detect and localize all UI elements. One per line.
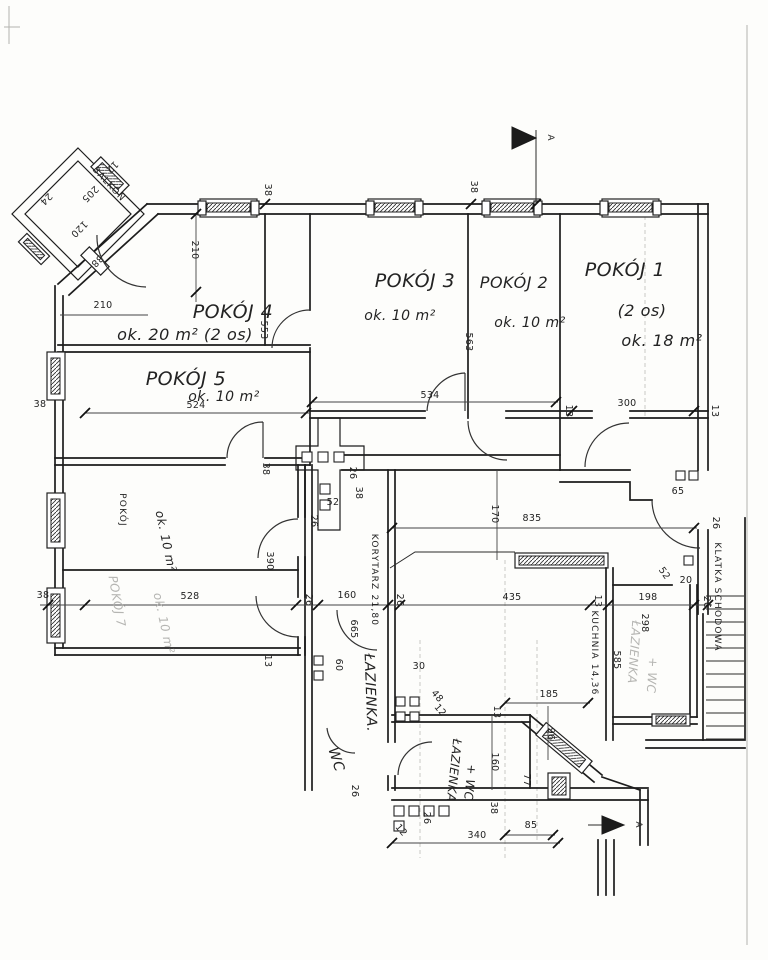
- door-p4-strip: [272, 310, 310, 348]
- dimension-label: 38: [37, 590, 50, 601]
- kitchen-lintel-hatch: [519, 556, 604, 565]
- dimension-label: 210: [93, 300, 112, 311]
- door-p1-hall: [585, 423, 629, 467]
- dimension-label: 65: [672, 486, 685, 497]
- dimension-label: 38: [353, 487, 364, 500]
- window-pokoj5: [47, 352, 65, 400]
- label-pokoj7: POKÓJ 7: [106, 574, 130, 628]
- window-diagonal: [536, 723, 592, 774]
- dimension-label: 585: [611, 650, 622, 669]
- window-bath-right: [652, 714, 690, 726]
- window-pokoj1: [600, 199, 661, 217]
- dimension-label: 534: [420, 390, 439, 401]
- window-pokoj3: [366, 199, 423, 217]
- dimension-label: 198: [638, 592, 657, 603]
- wall-kitchen-top: [390, 552, 515, 568]
- dimension-label: 24: [37, 190, 54, 207]
- door-entry: [652, 500, 700, 548]
- section-letter-bottom: A: [633, 821, 643, 828]
- dimension-label: 96: [545, 728, 556, 741]
- dimension-label: 435: [502, 592, 521, 603]
- label-pokoj3: POKÓJ 3: [375, 268, 456, 292]
- dimension-label: 205: [79, 183, 100, 204]
- dimension-label: 26: [701, 596, 712, 609]
- dimension-label: 52: [656, 565, 672, 582]
- dimension-label: 340: [467, 830, 486, 841]
- window-bottom-small: [548, 773, 570, 799]
- label-kuchnia: KUCHNIA 14,36: [589, 610, 599, 695]
- dimension-label: 26: [347, 467, 358, 480]
- area-pokoj1: ok. 18 m²: [621, 331, 702, 350]
- dimension-label: 38: [468, 181, 479, 194]
- wall-bottom: [392, 788, 648, 800]
- window-pokoj6: [47, 493, 65, 548]
- label-pokoj2: POKÓJ 2: [480, 273, 548, 292]
- label-pokoj1: POKÓJ 1: [585, 257, 666, 281]
- section-flag-icon: [512, 127, 536, 149]
- suffix-lazienka-wc-bottom: + WC: [461, 764, 479, 801]
- wall-right: [698, 204, 708, 740]
- dimension-label: 528: [180, 591, 199, 602]
- wall-porch: [598, 790, 648, 895]
- dimension-label: 30: [413, 661, 426, 672]
- dimension-label: 26: [349, 785, 360, 798]
- labels-layer: BALKON POKÓJ 4 ok. 20 m² (2 os) POKÓJ 3 …: [90, 165, 722, 802]
- dimension-label: 52: [327, 497, 340, 508]
- door-pokoj7: [256, 596, 298, 637]
- label-pokoj4: POKÓJ 4: [193, 299, 274, 323]
- balcony-outer-rail: [12, 148, 144, 280]
- label-klatka-schodowa: KLATKA SCHODOWA: [712, 542, 722, 651]
- dimension-label: 524: [186, 400, 205, 411]
- area-pokoj3: ok. 10 m²: [364, 308, 436, 324]
- floor-plan-page: A A BALKON POKÓJ 4 ok. 20 m² (2 os) POKÓ…: [0, 0, 768, 960]
- area-pokoj6: ok. 10 m²: [153, 509, 180, 573]
- label-korytarz: KORYTARZ 21,80: [369, 534, 379, 626]
- area-pokoj2: ok. 10 m²: [494, 315, 566, 331]
- dimension-label: 390: [264, 551, 275, 570]
- section-marker-bottom: A: [588, 816, 643, 834]
- window-pokoj4: [198, 199, 259, 217]
- dimension-label: 563: [463, 332, 474, 351]
- door-p5: [227, 422, 263, 458]
- dimension-label: 26: [308, 515, 319, 528]
- dimension-label: 170: [489, 504, 500, 523]
- dimension-label: 38: [260, 463, 271, 476]
- dimension-label: 12: [432, 702, 449, 719]
- dimension-label: 77: [521, 774, 532, 787]
- label-pokoj5: POKÓJ 5: [146, 366, 227, 390]
- dimension-label: 38: [488, 802, 499, 815]
- dimension-label: 13: [491, 706, 502, 719]
- dimension-label: 26: [710, 517, 721, 530]
- label-pokoj6: POKÓJ: [117, 493, 129, 527]
- dimension-label: 38: [34, 399, 47, 410]
- dimension-label: 120: [68, 218, 89, 239]
- dimension-label: 26: [394, 594, 405, 607]
- dimension-label: 160: [489, 752, 500, 771]
- wall-corridor-right: [388, 470, 395, 790]
- dimension-label: 85: [525, 820, 538, 831]
- dimension-label: 300: [617, 398, 636, 409]
- floor-plan-drawing: A A BALKON POKÓJ 4 ok. 20 m² (2 os) POKÓ…: [0, 0, 768, 960]
- area-pokoj7: ok. 10 m²: [151, 591, 178, 655]
- scan-artifacts: [4, 6, 747, 945]
- wall-entry: [560, 470, 652, 500]
- dimension-label: 13: [262, 655, 273, 668]
- door-pokoj6: [258, 519, 298, 558]
- dimension-label: 210: [189, 240, 200, 259]
- dimension-label: 665: [348, 619, 359, 638]
- dimension-label: 185: [539, 689, 558, 700]
- dimension-label: 553: [258, 320, 269, 339]
- balcony-window-2: [18, 233, 49, 264]
- dimension-label: 298: [639, 613, 650, 632]
- dimension-label: 13: [709, 405, 720, 418]
- dimension-label: 26: [303, 594, 314, 607]
- dimension-lines: [40, 199, 713, 848]
- section-flag-icon-bottom: [602, 816, 624, 834]
- dimension-label: 20: [680, 575, 693, 586]
- wall-left-rooms-right: [298, 465, 305, 655]
- dimension-label: 13: [592, 595, 603, 608]
- window-pokoj7: [47, 588, 65, 643]
- label-lazienka-wc-bottom: ŁAZIENKA: [444, 737, 465, 802]
- section-letter-top: A: [545, 134, 555, 141]
- dimension-label: 60: [333, 659, 344, 672]
- section-marker-top: A: [512, 127, 555, 204]
- dimension-label: 160: [337, 590, 356, 601]
- staircase-treads: [706, 596, 744, 739]
- wall-top-rooms-bottom: [310, 411, 708, 418]
- dimension-label: 13: [563, 405, 574, 418]
- wall-hall-north: [342, 455, 560, 470]
- dimension-label: 38: [262, 184, 273, 197]
- label-wc: WC: [324, 746, 347, 774]
- persons-pokoj1: (2 os): [618, 301, 667, 320]
- balcony-structure: [12, 148, 144, 280]
- dimension-label: 48: [429, 688, 446, 705]
- door-bath-bottom: [398, 742, 432, 775]
- dimension-label: 835: [522, 513, 541, 524]
- label-lazienka: ŁAZIENKA.: [361, 652, 380, 732]
- area-pokoj4: ok. 20 m² (2 os): [117, 325, 253, 344]
- dimension-label: 26: [421, 812, 432, 825]
- suffix-lazienka-wc-right: + WC: [644, 657, 660, 694]
